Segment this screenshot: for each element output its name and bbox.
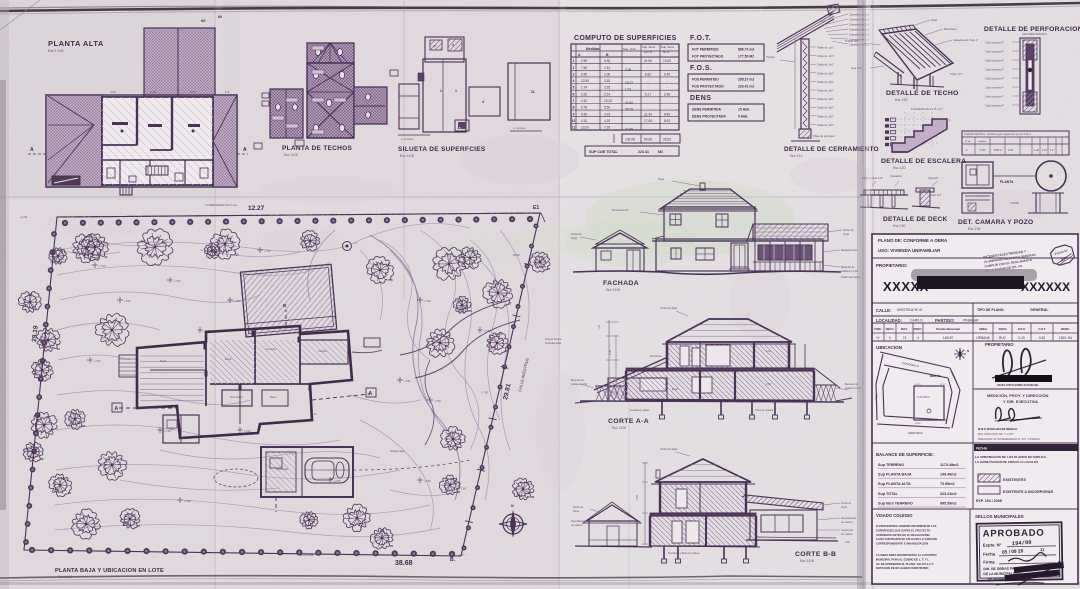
svg-text:B.: B. <box>450 557 456 563</box>
svg-text:71.56: 71.56 <box>625 128 633 132</box>
svg-text:AV. DE APROBADO EL PLANO. SALV: AV. DE APROBADO EL PLANO. SALVO A.C.T. <box>876 562 934 566</box>
svg-text:Sup libre TERRENO: Sup libre TERRENO <box>878 501 913 505</box>
svg-text:LA HABILITACION DE FINCAS O LO: LA HABILITACION DE FINCAS O LOCALES <box>975 460 1038 464</box>
svg-text:11: 11 <box>572 126 576 130</box>
svg-text:A: A <box>243 147 247 153</box>
svg-text:2.60: 2.60 <box>635 494 639 500</box>
svg-text:de madera: de madera <box>841 533 853 536</box>
svg-text:Sup PLANTA BAJA: Sup PLANTA BAJA <box>878 473 912 477</box>
svg-text:CORRESPONDIENTE E INHABILITACI: CORRESPONDIENTE E INHABILITACION <box>876 542 928 546</box>
svg-text:38.68: 38.68 <box>915 423 921 425</box>
svg-text:TIPO DE PLANO:: TIPO DE PLANO: <box>977 308 1005 312</box>
svg-text:7: 7 <box>573 99 575 103</box>
svg-text:Sup. Semi: Sup. Semi <box>661 45 674 49</box>
svg-text:23: 23 <box>82 424 86 428</box>
svg-text:5 ALZADAS DE 0.175 x 0.7: 5 ALZADAS DE 0.175 x 0.7 <box>911 107 943 111</box>
svg-text:+7.50: +7.50 <box>264 249 271 253</box>
svg-text:12.27: 12.27 <box>940 384 946 386</box>
svg-text:XXXXXX: XXXXXX <box>1021 280 1071 294</box>
svg-text:194/00: 194/00 <box>1012 539 1032 547</box>
svg-text:1.10: 1.10 <box>1042 149 1047 152</box>
svg-text:F.O.S: F.O.S <box>1018 327 1025 331</box>
svg-text:CIRC.: CIRC. <box>874 327 882 331</box>
svg-text:+7.50: +7.50 <box>404 379 411 383</box>
svg-text:COMPUTO DE SUPERFICIES: COMPUTO DE SUPERFICIES <box>574 35 677 42</box>
svg-text:2.14: 2.14 <box>604 92 610 96</box>
svg-text:UBICACION: UBICACION <box>876 345 903 350</box>
svg-text:Tejas: Tejas <box>931 18 938 22</box>
svg-text:2.90: 2.90 <box>581 59 587 63</box>
svg-text:DETALLE DE PERFORACION: DETALLE DE PERFORACION <box>984 26 1080 33</box>
svg-text:Techo de: Techo de <box>843 228 854 232</box>
svg-text:Esc 1:100: Esc 1:100 <box>58 575 72 579</box>
svg-text:29: 29 <box>390 544 394 548</box>
svg-text:1: 1 <box>573 59 575 63</box>
svg-text:Techo de: Techo de <box>573 506 584 509</box>
svg-text:Membrana: Membrana <box>944 27 957 31</box>
svg-text:5 Hab.: 5 Hab. <box>738 115 748 119</box>
svg-text:M.M.O MARIA BELEN MERELE: M.M.O MARIA BELEN MERELE <box>978 427 1018 431</box>
svg-text:29.19: 29.19 <box>915 384 921 386</box>
svg-text:150/1 HA: 150/1 HA <box>1059 336 1073 340</box>
svg-text:2.40: 2.40 <box>766 350 771 353</box>
svg-text:6.60: 6.60 <box>645 73 651 77</box>
svg-text:GENERAL: GENERAL <box>1030 308 1049 312</box>
svg-text:Esc 1:100: Esc 1:100 <box>800 559 814 563</box>
svg-text:SUP CUB TOTAL: SUP CUB TOTAL <box>589 150 619 154</box>
svg-text:1: 1 <box>440 89 442 93</box>
svg-text:Caño camisa 4": Caño camisa 4" <box>985 41 1004 45</box>
svg-text:148187: 148187 <box>943 336 954 340</box>
svg-text:Nº de: Nº de <box>965 140 971 143</box>
svg-text:Tabla de 1x6" .: Tabla de 1x6" . <box>817 80 836 84</box>
svg-text:Techo de Tejas: Techo de Tejas <box>660 306 678 310</box>
svg-text:Tejas: Tejas <box>658 177 665 181</box>
svg-text:177.50 M2: 177.50 M2 <box>738 55 754 59</box>
svg-text:+7.50: +7.50 <box>424 479 431 483</box>
svg-text:13.20: 13.20 <box>581 126 589 130</box>
svg-text:SILUETA DE SUPERFCIES: SILUETA DE SUPERFCIES <box>398 146 486 153</box>
svg-text:5.17: 5.17 <box>645 92 651 96</box>
svg-text:Caño camisa 4": Caño camisa 4" <box>985 77 1004 81</box>
svg-text:DETALLE DE DECK: DETALLE DE DECK <box>883 216 947 223</box>
svg-text:Expte. Nº: Expte. Nº <box>983 542 1002 547</box>
svg-text:Partida Municipal: Partida Municipal <box>936 327 960 331</box>
svg-text:Acceso Peaton: Acceso Peaton <box>545 338 562 341</box>
svg-text:-: - <box>666 126 667 130</box>
svg-text:Esc 1:100: Esc 1:100 <box>612 426 626 430</box>
svg-text:28.76: 28.76 <box>625 108 633 112</box>
svg-text:0.90: 0.90 <box>845 541 850 544</box>
svg-text:10.20: 10.20 <box>604 99 612 103</box>
svg-text:Techo de: Techo de <box>571 232 582 236</box>
svg-text:+7.50: +7.50 <box>234 299 241 303</box>
svg-text:995.58m2: 995.58m2 <box>940 501 957 505</box>
svg-text:Tabla de 1x6" .: Tabla de 1x6" . <box>817 89 836 93</box>
svg-text:4.10: 4.10 <box>581 99 587 103</box>
svg-text:11: 11 <box>1040 547 1045 552</box>
svg-text:135.08: 135.08 <box>625 138 635 142</box>
svg-text:CAMARA SEPTICA: medidas segun: CAMARA SEPTICA: medidas segun reglamento… <box>964 133 1031 136</box>
svg-text:Caño camisa 4": Caño camisa 4" <box>985 86 1004 90</box>
svg-text:15 Hab.: 15 Hab. <box>738 108 750 112</box>
svg-text:1173.48m2: 1173.48m2 <box>940 463 958 467</box>
svg-text:41: 41 <box>105 255 109 259</box>
svg-text:Baranda de: Baranda de <box>845 383 859 386</box>
svg-text:MAZ.: MAZ. <box>901 327 908 331</box>
svg-text:L. terreno: L. terreno <box>513 126 526 130</box>
svg-text:33: 33 <box>531 495 535 499</box>
svg-text:4: 4 <box>917 336 919 340</box>
svg-text:Caño camisa 4": Caño camisa 4" <box>985 50 1004 54</box>
svg-text:Fundacion: pilotes de madera: Fundacion: pilotes de madera <box>668 552 700 555</box>
svg-text:AVESTRUZ Nº 41: AVESTRUZ Nº 41 <box>897 308 923 312</box>
svg-text:7.51: 7.51 <box>597 324 601 330</box>
svg-text:Poste de madera: Poste de madera <box>755 409 774 412</box>
svg-text:madera h 0.90: madera h 0.90 <box>571 383 588 386</box>
svg-text:1.00: 1.00 <box>604 73 610 77</box>
svg-text:Techo de: Techo de <box>841 502 852 505</box>
svg-text:Estar: Estar <box>672 388 678 391</box>
svg-text:LA OBRA SERA INCORPORADA AL CA: LA OBRA SERA INCORPORADA AL CATASTRO <box>876 553 937 557</box>
svg-text:Esc 1:100: Esc 1:100 <box>606 288 620 292</box>
svg-text:PROPIETARIO:: PROPIETARIO: <box>876 263 908 268</box>
svg-text:-: - <box>647 79 648 83</box>
svg-text:Esc 1:100: Esc 1:100 <box>48 49 64 53</box>
svg-text:DENS: DENS <box>690 95 711 102</box>
svg-text:PINAMAR: PINAMAR <box>963 319 979 323</box>
svg-text:7.20: 7.20 <box>604 126 610 130</box>
svg-text:PLANO DE: CONFORME A OBRA: PLANO DE: CONFORME A OBRA <box>878 238 948 243</box>
svg-text:1.10: 1.10 <box>1008 148 1014 152</box>
svg-text:4: 4 <box>482 100 484 104</box>
svg-text:+8.50: +8.50 <box>513 253 521 257</box>
svg-text:2.60: 2.60 <box>766 383 771 386</box>
svg-text:Caño camisa 4": Caño camisa 4" <box>985 104 1004 108</box>
svg-text:13.90: 13.90 <box>663 59 671 63</box>
svg-text:MUNICIPAL PARA EL COBRO DE L.: MUNICIPAL PARA EL COBRO DE L. T. Y L. <box>876 557 930 561</box>
svg-text:Comedor: Comedor <box>265 347 277 351</box>
svg-text:39: 39 <box>40 457 44 461</box>
svg-text:DIRECCION: AV. INTERMEDANOS Nº: DIRECCION: AV. INTERMEDANOS Nº 972 - PIN… <box>978 437 1040 441</box>
svg-text:SUPERFICIES QUE SUFRA EL PROYE: SUPERFICIES QUE SUFRA EL PROYECTO <box>876 528 930 532</box>
svg-text:El PROFESIONAL DEBERA INFORMAR: El PROFESIONAL DEBERA INFORMAR DE LAS <box>876 524 937 528</box>
svg-text:100 %: 100 % <box>644 50 652 54</box>
svg-text:VISADO COLEGIO: VISADO COLEGIO <box>876 513 913 518</box>
svg-text:F.O.T.: F.O.T. <box>690 35 711 42</box>
svg-text:Tirante: Tirante <box>766 55 775 59</box>
svg-text:PLANTA: PLANTA <box>1000 180 1014 184</box>
svg-text:Tirante 2x6": Tirante 2x6" <box>845 39 859 43</box>
svg-text:4.19: 4.19 <box>604 119 610 123</box>
svg-text:CORTE B-B: CORTE B-B <box>795 551 836 558</box>
svg-text:-: - <box>647 86 648 90</box>
svg-text:Tabla de 1x6" .: Tabla de 1x6" . <box>817 114 836 118</box>
svg-text:2.25: 2.25 <box>604 86 610 90</box>
svg-text:PROPIETARIO: PROPIETARIO <box>985 342 1014 347</box>
svg-text:Tabla de 1x6" .: Tabla de 1x6" . <box>817 97 836 101</box>
svg-text:74: 74 <box>903 336 907 340</box>
svg-text:de madera: de madera <box>841 521 853 524</box>
svg-text:11.34: 11.34 <box>644 112 652 116</box>
svg-text:Revestimiento: Revestimiento <box>612 208 629 212</box>
svg-text:Deck: Deck <box>160 359 167 363</box>
svg-text:6.30: 6.30 <box>604 59 610 63</box>
svg-text:+ 6: + 6 <box>353 241 357 245</box>
svg-text:PARTIDO:: PARTIDO: <box>935 318 955 323</box>
svg-text:Revestimiento: Revestimiento <box>571 520 587 523</box>
svg-text:2: 2 <box>573 66 575 70</box>
svg-text:1.20: 1.20 <box>1034 149 1039 152</box>
svg-text:AREA: AREA <box>979 327 988 331</box>
svg-text:3.90: 3.90 <box>110 90 116 94</box>
svg-text:-: - <box>647 106 648 110</box>
svg-text:Caño camisa 4": Caño camisa 4" <box>985 68 1004 72</box>
svg-text:Sup. Semi: Sup. Semi <box>642 45 655 49</box>
svg-text:FOT PERMITIDO: FOT PERMITIDO <box>692 48 719 52</box>
svg-text:PLANTA BAJA Y UBICACION EN LOT: PLANTA BAJA Y UBICACION EN LOTE <box>55 568 164 574</box>
svg-text:6.50: 6.50 <box>581 73 587 77</box>
svg-text:26.52: 26.52 <box>663 138 671 142</box>
svg-text:0.45: 0.45 <box>664 73 670 77</box>
svg-text:1.91: 1.91 <box>625 88 631 92</box>
svg-text:CARILO: CARILO <box>910 319 923 323</box>
svg-text:Tabla de 1x6" .: Tabla de 1x6" . <box>817 46 836 50</box>
svg-text:+7.50: +7.50 <box>124 299 131 303</box>
svg-text:Esc 1:20: Esc 1:20 <box>893 166 906 170</box>
svg-text:223.41m2: 223.41m2 <box>940 492 957 496</box>
svg-text:RUC: RUC <box>999 336 1007 340</box>
svg-text:+4.77: +4.77 <box>458 553 465 557</box>
svg-text:MEDICIÓN, PROY. Y DIRECCIÓN: MEDICIÓN, PROY. Y DIRECCIÓN <box>987 393 1049 398</box>
svg-text:5.0 MEDIANERA 42.27 mts: 5.0 MEDIANERA 42.27 mts <box>205 203 237 207</box>
svg-text:APROBADO: APROBADO <box>983 528 1045 540</box>
svg-text:-: - <box>647 99 648 103</box>
svg-text:+7.00: +7.00 <box>481 390 489 394</box>
svg-text:Dormitorio: Dormitorio <box>650 355 662 358</box>
svg-text:9: 9 <box>573 112 575 116</box>
svg-text:Poste 4x4": Poste 4x4" <box>930 194 942 197</box>
svg-text:Cocina: Cocina <box>318 349 327 353</box>
svg-text:DENS PROYECTADA: DENS PROYECTADA <box>692 115 726 119</box>
svg-text:1: 1 <box>455 89 457 93</box>
svg-text:223.41: 223.41 <box>638 150 649 154</box>
svg-text:54.06: 54.06 <box>644 138 652 142</box>
svg-text:17: 17 <box>508 302 512 306</box>
svg-text:Medidas: Medidas <box>586 47 600 51</box>
svg-text:30.99 mts: 30.99 mts <box>300 553 314 557</box>
svg-text:+4.61: +4.61 <box>20 215 28 219</box>
svg-text:8: 8 <box>573 106 575 110</box>
svg-text:Tabla de 1x6" .: Tabla de 1x6" . <box>817 123 836 127</box>
svg-text:A: A <box>369 391 373 397</box>
svg-text:31: 31 <box>457 490 461 494</box>
svg-text:38.68: 38.68 <box>395 560 413 567</box>
svg-text:-: - <box>647 66 648 70</box>
svg-text:Fecha: Fecha <box>983 551 996 556</box>
svg-text:NDA. 34: NDA. 34 <box>930 374 941 378</box>
svg-text:1173.48m2: 1173.48m2 <box>917 395 930 399</box>
svg-text:Tejas: Tejas <box>571 236 578 240</box>
svg-text:6: 6 <box>573 92 575 96</box>
svg-text:FECHA: FECHA <box>976 447 988 451</box>
svg-text:21: 21 <box>505 349 509 353</box>
svg-text:3.15: 3.15 <box>604 79 610 83</box>
svg-text:11: 11 <box>531 90 535 94</box>
svg-text:EXISTENTE A INCORPORAR: EXISTENTE A INCORPORAR <box>1003 490 1053 494</box>
svg-text:Esc 1:100: Esc 1:100 <box>400 154 414 158</box>
svg-text:41.82: 41.82 <box>625 101 633 105</box>
svg-text:GARAGE: GARAGE <box>276 467 288 471</box>
svg-text:7.60: 7.60 <box>581 66 587 70</box>
svg-text:ROEL: ROEL <box>875 393 879 400</box>
svg-text:3.28: 3.28 <box>150 90 156 94</box>
svg-text:DENS.: DENS. <box>1061 327 1070 331</box>
svg-text:PLANTA ALTA: PLANTA ALTA <box>48 39 104 48</box>
svg-text:1.0: 1.0 <box>225 90 230 94</box>
svg-text:Vehicular lajas: Vehicular lajas <box>545 342 562 345</box>
svg-text:8.52: 8.52 <box>664 119 670 123</box>
svg-text:-: - <box>666 66 667 70</box>
svg-text:CORTE: CORTE <box>1010 201 1019 205</box>
svg-text:3: 3 <box>573 73 575 77</box>
svg-text:+7.50: +7.50 <box>334 479 341 483</box>
svg-text:PARC.: PARC. <box>914 327 923 331</box>
svg-text:1.20: 1.20 <box>980 148 986 152</box>
svg-text:Pilote de Hormigon: Pilote de Hormigon <box>813 134 836 138</box>
svg-text:19: 19 <box>57 347 61 351</box>
svg-text:Estar: Estar <box>225 357 232 361</box>
svg-text:LA APROBACION DE LOS PLANOS NO: LA APROBACION DE LOS PLANOS NO IMPLICA <box>975 455 1047 459</box>
svg-text:Esc 1:20: Esc 1:20 <box>895 98 908 102</box>
svg-text:Sup. Cub: Sup. Cub <box>623 47 636 51</box>
svg-text:-: - <box>666 79 667 83</box>
svg-text:EXISTENTES: EXISTENTES <box>1003 478 1026 482</box>
svg-text:Poste 7x7": Poste 7x7" <box>950 72 963 76</box>
svg-text:10: 10 <box>572 119 576 123</box>
svg-text:Carpinteria: Carpinteria <box>841 529 853 532</box>
svg-text:Ho: Ho <box>170 427 174 431</box>
svg-text:-: - <box>666 99 667 103</box>
svg-text:+7.50: +7.50 <box>174 279 181 283</box>
svg-text:DETALLE DE TECHO: DETALLE DE TECHO <box>886 90 959 97</box>
svg-text:Baranda de: Baranda de <box>571 379 585 382</box>
svg-text:EXP. 194 / 2008: EXP. 194 / 2008 <box>976 499 1002 503</box>
svg-text:XXXXX JUSTO GOMEZ S: XXXXX JUSTO GOMEZ SAN MIGUEL <box>997 384 1039 387</box>
svg-text:F.O.S.: F.O.S. <box>690 65 712 72</box>
svg-text:F.O.T: F.O.T <box>1038 327 1045 331</box>
svg-text:madera h 0.90: madera h 0.90 <box>841 269 858 273</box>
svg-text:M2: M2 <box>658 150 663 154</box>
svg-text:BALANCE DE SUPERFICIE:: BALANCE DE SUPERFICIE: <box>876 452 934 457</box>
svg-text:Baranda de: Baranda de <box>841 265 855 269</box>
svg-text:USO: VIVIENDA UNIFAMILIAR: USO: VIVIENDA UNIFAMILIAR <box>878 248 941 253</box>
svg-text:1.74: 1.74 <box>581 86 587 90</box>
svg-text:Lav: Lav <box>312 412 317 416</box>
svg-text:FOS PERMITIDO: FOS PERMITIDO <box>692 78 719 82</box>
svg-text:-: - <box>647 126 648 130</box>
svg-text:5.60: 5.60 <box>581 112 587 116</box>
svg-text:5: 5 <box>573 86 575 90</box>
svg-text:SECC.: SECC. <box>886 327 895 331</box>
svg-text:CASO CONTRARIO SE APLICARA LA: CASO CONTRARIO SE APLICARA LA SANCION <box>876 537 937 541</box>
svg-text:DENS PERMITIDA: DENS PERMITIDA <box>692 108 722 112</box>
svg-text:Tabla de 1x6" .: Tabla de 1x6" . <box>817 106 836 110</box>
svg-text:295.27 m2: 295.27 m2 <box>738 78 754 82</box>
svg-text:+7.50: +7.50 <box>424 299 431 303</box>
svg-text:12.27: 12.27 <box>248 205 265 212</box>
svg-text:SELLOS MUNICIPALES: SELLOS MUNICIPALES <box>975 514 1024 519</box>
svg-text:FOT PROYECTADO: FOT PROYECTADO <box>692 55 724 59</box>
svg-text:-: - <box>666 106 667 110</box>
svg-text:MAT. 0949 CONS. MP. T. G-057: MAT. 0949 CONS. MP. T. G-057 <box>978 433 1014 436</box>
svg-text:+7.50: +7.50 <box>94 359 101 363</box>
svg-text:Dormitorio: Dormitorio <box>230 395 243 399</box>
svg-text:Tabla de 1x6" .: Tabla de 1x6" . <box>817 71 836 75</box>
svg-text:12.50: 12.50 <box>581 79 589 83</box>
svg-text:Caño camisa 4": Caño camisa 4" <box>985 59 1004 63</box>
svg-text:9.80: 9.80 <box>664 112 670 116</box>
svg-text:4.10: 4.10 <box>581 119 587 123</box>
svg-text:0.60 m: 0.60 m <box>994 148 1002 152</box>
svg-text:Revestimiento: Revestimiento <box>841 517 857 520</box>
svg-text:Sup PLANTA ALTA: Sup PLANTA ALTA <box>878 482 911 486</box>
svg-text:Viga 2x6": Viga 2x6" <box>928 177 939 180</box>
svg-text:2.56: 2.56 <box>664 92 670 96</box>
svg-text:Revestimiento: Revestimiento <box>841 248 858 252</box>
svg-text:Fundacion: pilotes: Fundacion: pilotes <box>630 409 650 412</box>
svg-text:5.50: 5.50 <box>604 106 610 110</box>
svg-text:NOTACION DE NO HABER CONSTRUID: NOTACION DE NO HABER CONSTRUIDO <box>876 566 929 570</box>
svg-text:Tejas: Tejas <box>843 232 850 236</box>
svg-text:+7.50: +7.50 <box>99 264 106 268</box>
svg-text:73.95m2: 73.95m2 <box>940 482 955 486</box>
svg-text:Tabla de 1x6" .: Tabla de 1x6" . <box>817 54 836 58</box>
svg-text:CORTE A-A: CORTE A-A <box>608 418 649 425</box>
svg-text:16.27: 16.27 <box>625 81 633 85</box>
svg-text:223.41 m2: 223.41 m2 <box>738 85 754 89</box>
svg-text:25: 25 <box>68 491 72 495</box>
svg-text:medidas: medidas <box>978 141 987 143</box>
svg-text:35: 35 <box>468 309 472 313</box>
svg-text:ZONA: ZONA <box>998 327 1007 331</box>
svg-text:UNA PERFORACION: UNA PERFORACION <box>1022 32 1047 36</box>
svg-text:de madera: de madera <box>571 524 583 527</box>
svg-text:886.74 m2: 886.74 m2 <box>738 48 754 52</box>
svg-text:13: 13 <box>235 253 239 257</box>
svg-text:0.25: 0.25 <box>1018 336 1024 340</box>
svg-text:Sup TOTAL: Sup TOTAL <box>878 492 899 496</box>
svg-text:AVESTRUZ: AVESTRUZ <box>908 431 923 435</box>
svg-text:E1: E1 <box>533 205 539 211</box>
svg-text:FACHADA: FACHADA <box>603 280 639 287</box>
svg-text:3.60: 3.60 <box>190 90 196 94</box>
svg-text:21.90: 21.90 <box>644 59 652 63</box>
svg-text:A: A <box>30 147 34 153</box>
svg-text:A: A <box>115 406 119 412</box>
svg-text:4: 4 <box>573 79 575 83</box>
svg-text:Solado: lajas: Solado: lajas <box>390 450 405 453</box>
svg-text:0.50: 0.50 <box>1039 336 1045 340</box>
svg-text:Esc 1:20: Esc 1:20 <box>893 224 906 228</box>
svg-text:Esc 1:100: Esc 1:100 <box>284 153 298 157</box>
svg-text:Tejas: Tejas <box>573 510 580 513</box>
svg-text:17.05: 17.05 <box>644 119 652 123</box>
svg-text:LOCALIDAD:: LOCALIDAD: <box>876 318 902 323</box>
svg-text:Esc 1:50: Esc 1:50 <box>968 227 981 231</box>
svg-text:60: 60 <box>218 15 222 19</box>
svg-text:FOS PROYECTADO: FOS PROYECTADO <box>692 85 724 89</box>
